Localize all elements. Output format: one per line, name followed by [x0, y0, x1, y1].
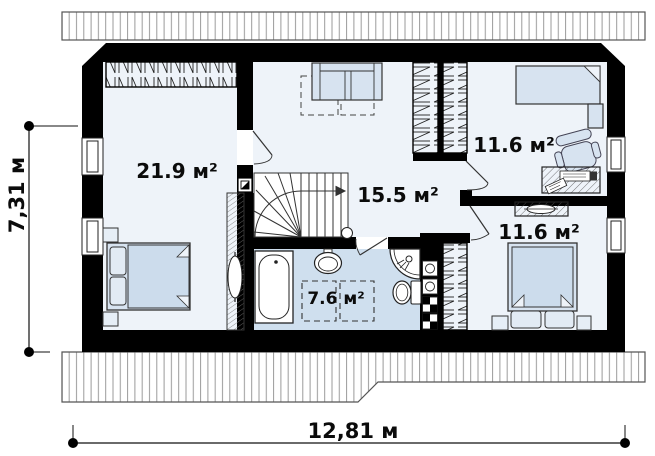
wall-below-wardrobes — [413, 153, 467, 161]
toilet — [393, 281, 421, 304]
pillow — [110, 277, 126, 305]
nightstand — [103, 312, 118, 326]
pillow — [511, 311, 541, 328]
keyboard — [560, 171, 590, 181]
vent-checker-1 — [423, 297, 438, 312]
floor-plan-drawing: 21.9 м² 15.5 м² 11.6 м² 11.6 м² 7.6 м² 7… — [0, 0, 655, 456]
window-left-2 — [82, 218, 103, 255]
roof-band-top — [62, 12, 645, 40]
wardrobe-bedroom-top-right — [443, 62, 467, 153]
door-opening-bedroom-left — [237, 130, 253, 165]
pillow — [545, 311, 574, 328]
area-label-bedroom-bottom-right: 11.6 м² — [498, 220, 579, 244]
floor-plan-canvas: 21.9 м² 15.5 м² 11.6 м² 11.6 м² 7.6 м² 7… — [0, 0, 655, 456]
door-jamb-topright — [460, 190, 472, 206]
electrical-panel-icon — [238, 178, 252, 192]
sliding-wardrobe-panel — [227, 193, 244, 330]
nightstand — [577, 316, 591, 330]
wall-hall-bedroomleft-top — [237, 62, 253, 130]
dimension-height-label: 7,31 м — [5, 157, 29, 233]
door-jamb-bottomright — [455, 233, 470, 243]
wardrobe-bedroom-bottom-right — [443, 243, 467, 330]
roof-band-bottom — [62, 352, 645, 402]
wall-bathroom-top-right — [388, 237, 420, 249]
stair-newel-post — [342, 228, 353, 239]
wall-bathroom-top — [242, 237, 356, 249]
desk — [542, 167, 600, 194]
nightstand — [103, 228, 118, 242]
area-label-bathroom: 7.6 м² — [307, 289, 364, 309]
window-right-2 — [607, 218, 625, 253]
dresser-with-mirror — [515, 202, 568, 216]
wardrobe-hall — [413, 62, 438, 153]
stairs — [254, 173, 353, 239]
area-label-bedroom-left: 21.9 м² — [136, 159, 217, 183]
area-label-bedroom-top-right: 11.6 м² — [473, 133, 554, 157]
wardrobe-bedroom-left — [106, 62, 237, 87]
desk-object — [590, 172, 597, 181]
window-left-1 — [82, 138, 103, 175]
bathtub — [255, 251, 293, 323]
dimension-height — [24, 121, 78, 357]
bedside-unit — [588, 104, 603, 128]
area-label-hall: 15.5 м² — [357, 183, 438, 207]
nightstand — [492, 316, 508, 330]
wall-hall-topright — [438, 62, 443, 153]
pillow — [110, 247, 126, 275]
window-right-1 — [607, 137, 625, 172]
vent-checker-2 — [423, 314, 438, 329]
dimension-width-label: 12,81 м — [308, 419, 399, 443]
